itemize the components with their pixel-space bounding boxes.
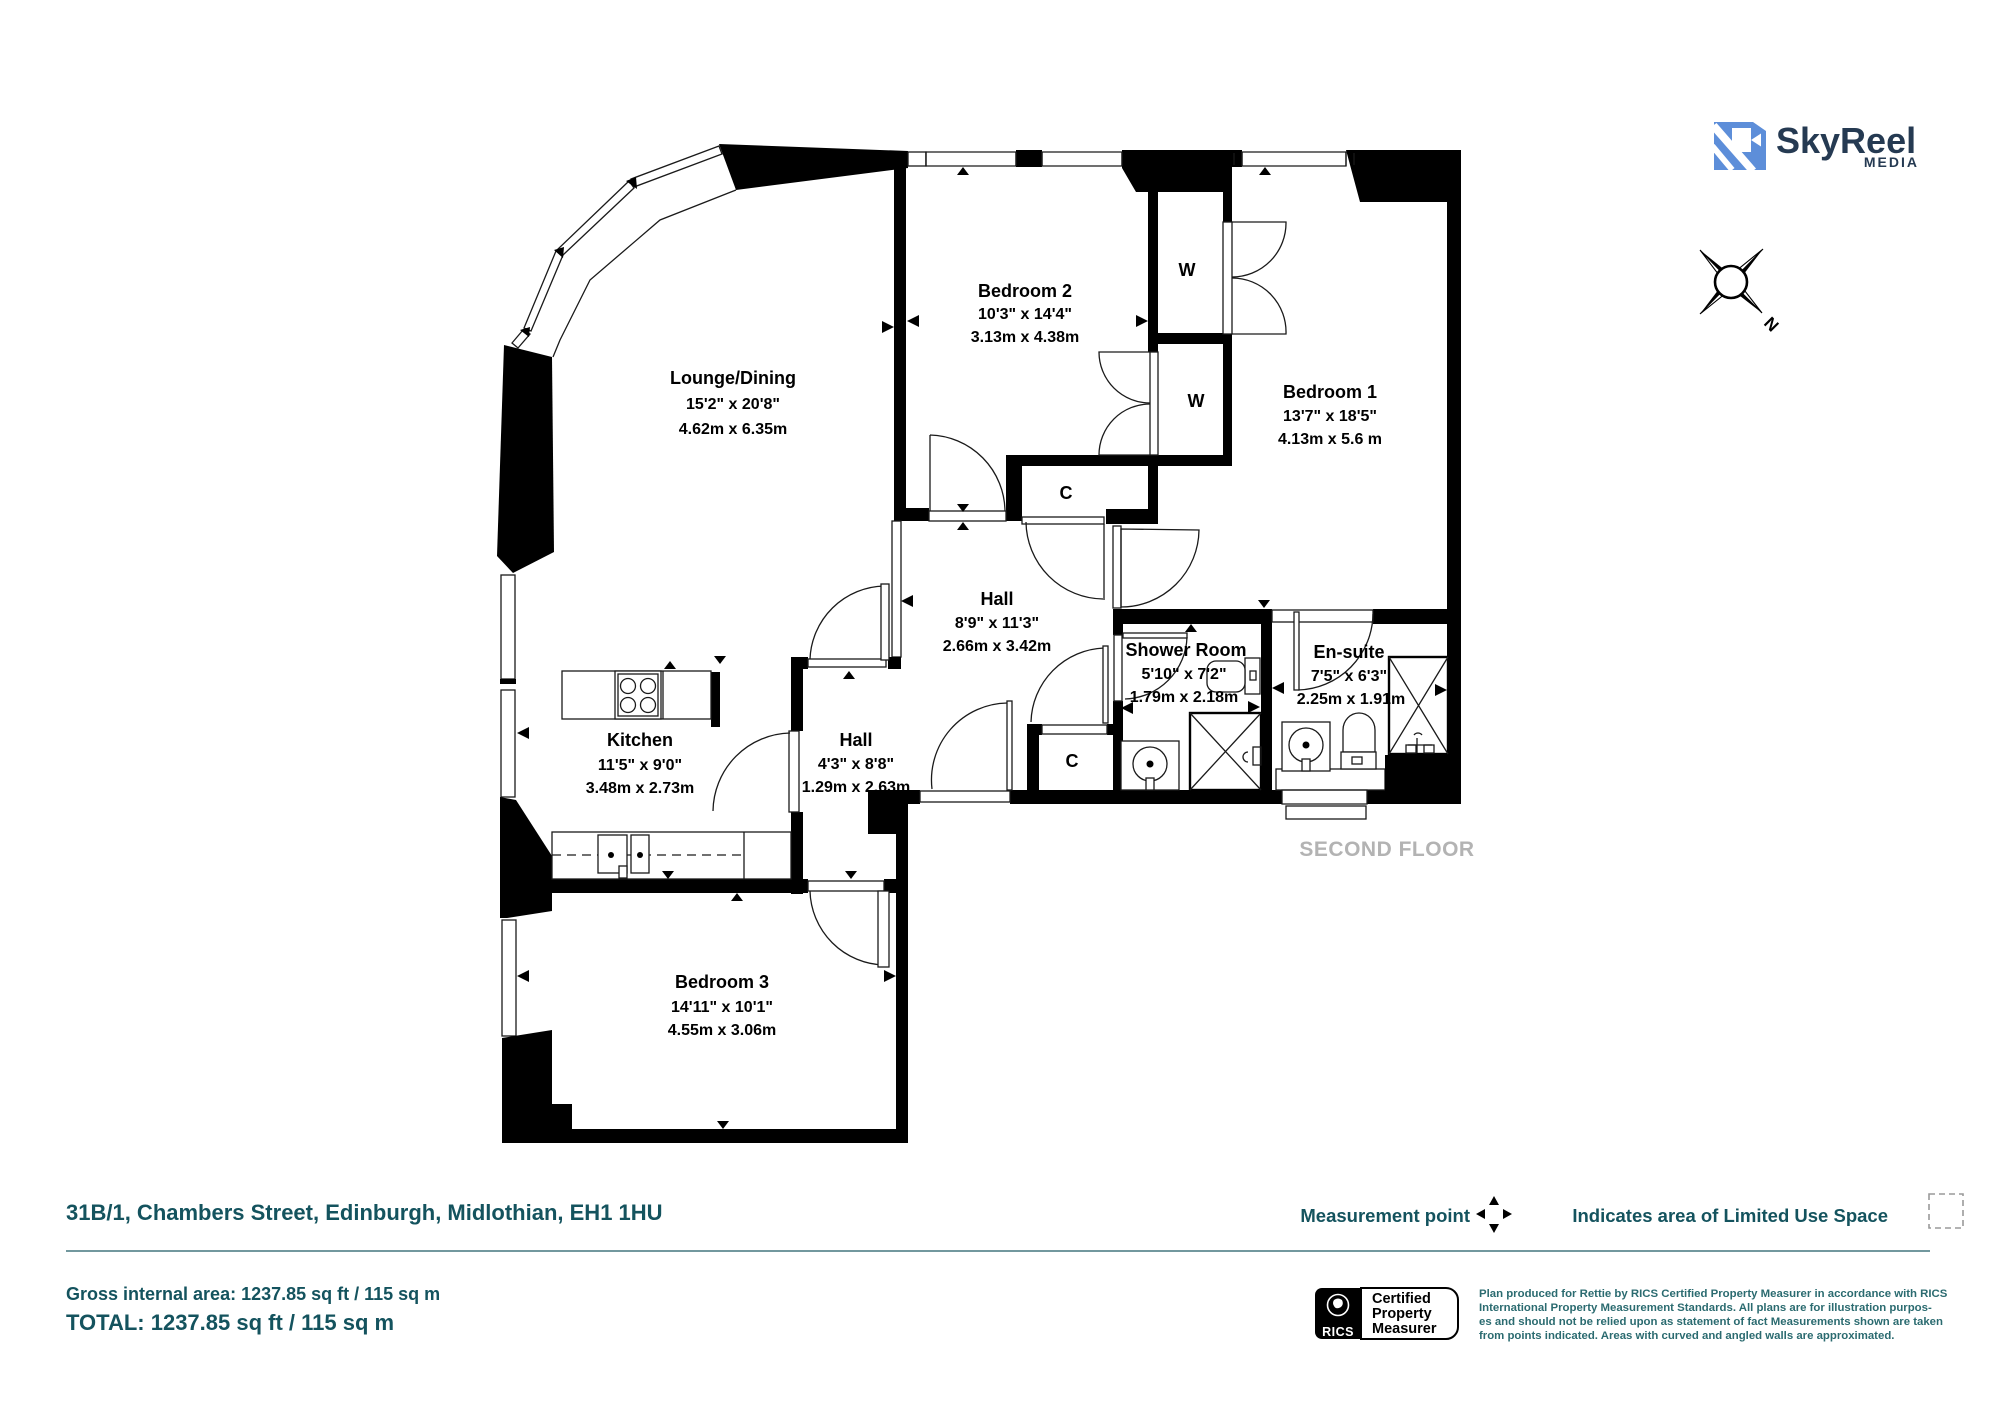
svg-text:SECOND FLOOR: SECOND FLOOR: [1299, 838, 1474, 861]
svg-text:11'5" x 9'0": 11'5" x 9'0": [598, 757, 682, 774]
svg-text:W: W: [1179, 260, 1196, 280]
svg-text:C: C: [1060, 483, 1073, 503]
svg-text:RICS: RICS: [1322, 1325, 1354, 1339]
svg-text:from points indicated. Areas w: from points indicated. Areas with curved…: [1479, 1330, 1894, 1342]
svg-text:TOTAL: 1237.85 sq ft / 115 sq: TOTAL: 1237.85 sq ft / 115 sq m: [66, 1310, 394, 1335]
svg-text:Measurer: Measurer: [1372, 1321, 1437, 1337]
svg-text:Lounge/Dining: Lounge/Dining: [670, 368, 796, 388]
svg-text:5'10" x 7'2": 5'10" x 7'2": [1141, 666, 1226, 683]
svg-text:31B/1, Chambers Street, Edinbu: 31B/1, Chambers Street, Edinburgh, Midlo…: [66, 1200, 663, 1225]
svg-text:2.25m x 1.91m: 2.25m x 1.91m: [1297, 691, 1406, 708]
svg-text:es and should not be relied up: es and should not be relied upon as stat…: [1479, 1316, 1943, 1328]
svg-text:4'3" x 8'8": 4'3" x 8'8": [818, 756, 894, 773]
svg-text:C: C: [1066, 751, 1079, 771]
svg-text:International Property Measur: International Property Measurement Stand…: [1479, 1302, 1932, 1314]
svg-text:3.48m x 2.73m: 3.48m x 2.73m: [586, 780, 695, 797]
svg-text:Bedroom 2: Bedroom 2: [978, 281, 1072, 301]
svg-text:13'7" x 18'5": 13'7" x 18'5": [1283, 408, 1377, 425]
svg-text:W: W: [1188, 391, 1205, 411]
svg-text:Indicates area of Limited Use: Indicates area of Limited Use Space: [1572, 1205, 1888, 1226]
svg-text:MEDIA: MEDIA: [1864, 154, 1919, 170]
svg-text:10'3" x 14'4": 10'3" x 14'4": [978, 306, 1072, 323]
svg-text:3.13m x 4.38m: 3.13m x 4.38m: [971, 329, 1080, 346]
svg-text:14'11" x 10'1": 14'11" x 10'1": [671, 999, 773, 1016]
svg-text:Property: Property: [1372, 1306, 1432, 1322]
svg-text:Bedroom 1: Bedroom 1: [1283, 382, 1377, 402]
svg-text:Hall: Hall: [980, 589, 1013, 609]
svg-text:Certified: Certified: [1372, 1291, 1431, 1307]
svg-text:1.29m x 2.63m: 1.29m x 2.63m: [802, 779, 911, 796]
svg-text:4.13m x 5.6 m: 4.13m x 5.6 m: [1278, 431, 1382, 448]
svg-text:Bedroom 3: Bedroom 3: [675, 972, 769, 992]
svg-text:Measurement point: Measurement point: [1300, 1205, 1470, 1226]
svg-text:7'5" x 6'3": 7'5" x 6'3": [1311, 668, 1387, 685]
svg-text:1.79m x 2.18m: 1.79m x 2.18m: [1130, 689, 1239, 706]
svg-text:Shower Room: Shower Room: [1125, 640, 1246, 660]
svg-text:En-suite: En-suite: [1313, 642, 1384, 662]
svg-text:8'9" x 11'3": 8'9" x 11'3": [955, 615, 1039, 632]
svg-text:15'2" x 20'8": 15'2" x 20'8": [686, 396, 780, 413]
svg-text:Gross internal area: 1237.85 s: Gross internal area: 1237.85 sq ft / 115…: [66, 1284, 440, 1304]
svg-text:Plan produced for Rettie by RI: Plan produced for Rettie by RICS Certifi…: [1479, 1288, 1948, 1300]
svg-text:Hall: Hall: [839, 730, 872, 750]
svg-text:4.55m x 3.06m: 4.55m x 3.06m: [668, 1022, 777, 1039]
svg-text:2.66m x 3.42m: 2.66m x 3.42m: [943, 638, 1052, 655]
svg-text:Kitchen: Kitchen: [607, 730, 673, 750]
svg-text:4.62m x 6.35m: 4.62m x 6.35m: [679, 421, 788, 438]
